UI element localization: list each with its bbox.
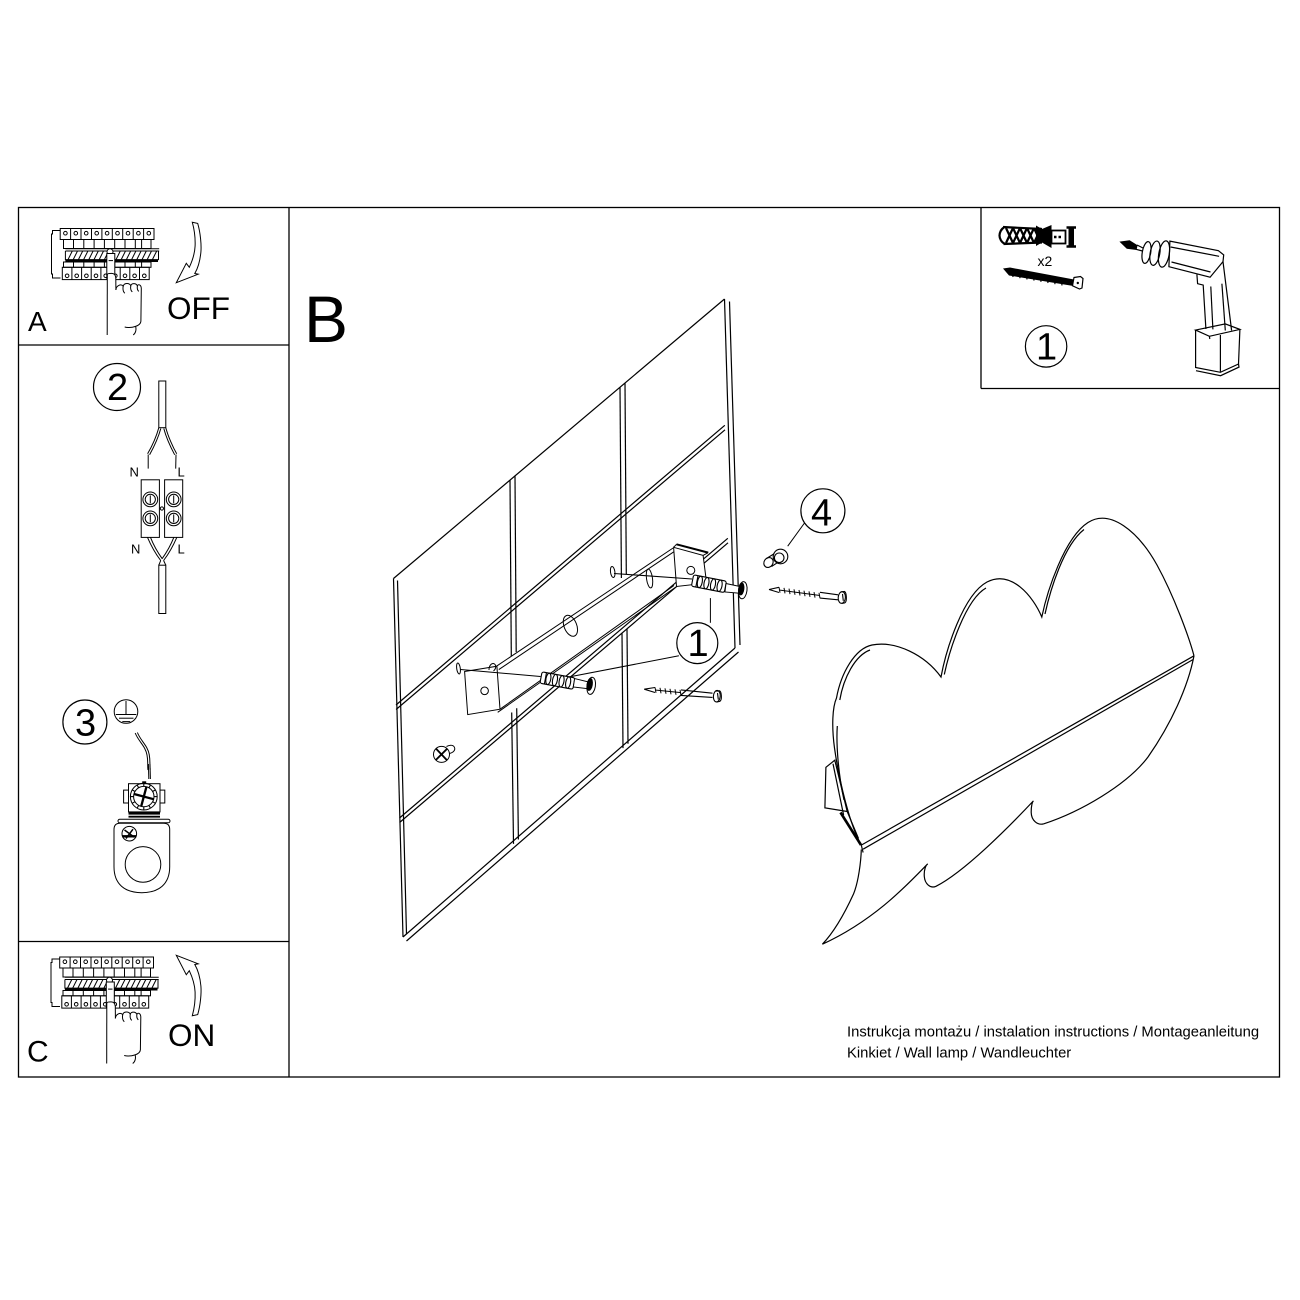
svg-text:ON: ON: [168, 1017, 215, 1053]
svg-text:L: L: [178, 465, 185, 480]
svg-text:L: L: [178, 542, 185, 557]
svg-text:C: C: [27, 1036, 49, 1069]
svg-text:1: 1: [688, 623, 709, 665]
svg-text:B: B: [304, 282, 348, 356]
svg-text:N: N: [131, 542, 140, 557]
svg-text:1: 1: [1036, 327, 1057, 369]
svg-text:A: A: [28, 306, 47, 337]
svg-text:3: 3: [75, 703, 96, 745]
svg-text:2: 2: [107, 367, 128, 409]
svg-text:4: 4: [811, 493, 832, 535]
svg-text:Kinkiet / Wall lamp / Wandleuc: Kinkiet / Wall lamp / Wandleuchter: [847, 1046, 1071, 1062]
svg-text:N: N: [130, 465, 139, 480]
svg-text:Instrukcja montażu / instalati: Instrukcja montażu / instalation instruc…: [847, 1025, 1259, 1041]
svg-text:OFF: OFF: [167, 290, 230, 326]
svg-text:x2: x2: [1038, 253, 1053, 269]
